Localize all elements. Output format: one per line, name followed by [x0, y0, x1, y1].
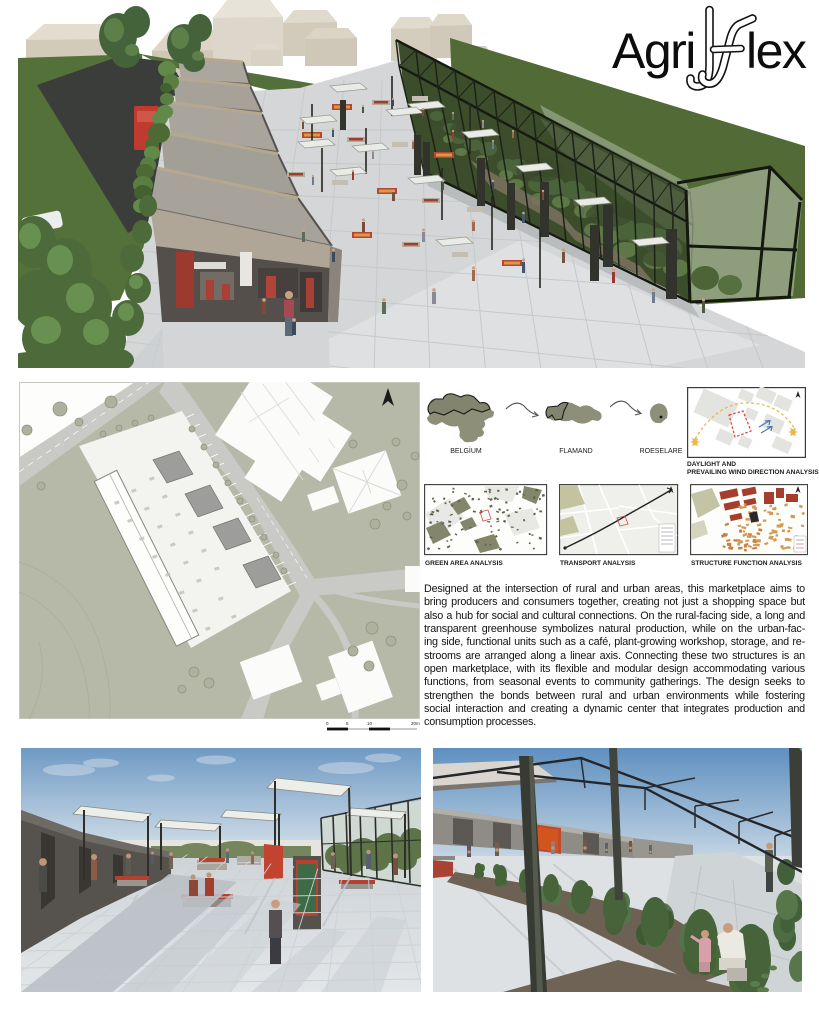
svg-text:TRANSPORT ANALYSIS: TRANSPORT ANALYSIS [560, 560, 636, 567]
svg-text:Agri: Agri [612, 23, 695, 79]
svg-text:ROESELARE: ROESELARE [640, 448, 683, 455]
svg-text:10: 10 [367, 721, 373, 726]
svg-text:STRUCTURE FUNCTION ANALYSIS: STRUCTURE FUNCTION ANALYSIS [691, 560, 802, 567]
svg-text:0: 0 [326, 721, 329, 726]
svg-text:lex: lex [746, 23, 807, 79]
svg-text:FLAMAND: FLAMAND [559, 448, 592, 455]
svg-text:5: 5 [346, 721, 349, 726]
svg-text:GREEN AREA ANALYSIS: GREEN AREA ANALYSIS [425, 560, 503, 567]
svg-text:20m: 20m [411, 721, 420, 726]
svg-text:BELGİUM: BELGİUM [450, 446, 482, 455]
